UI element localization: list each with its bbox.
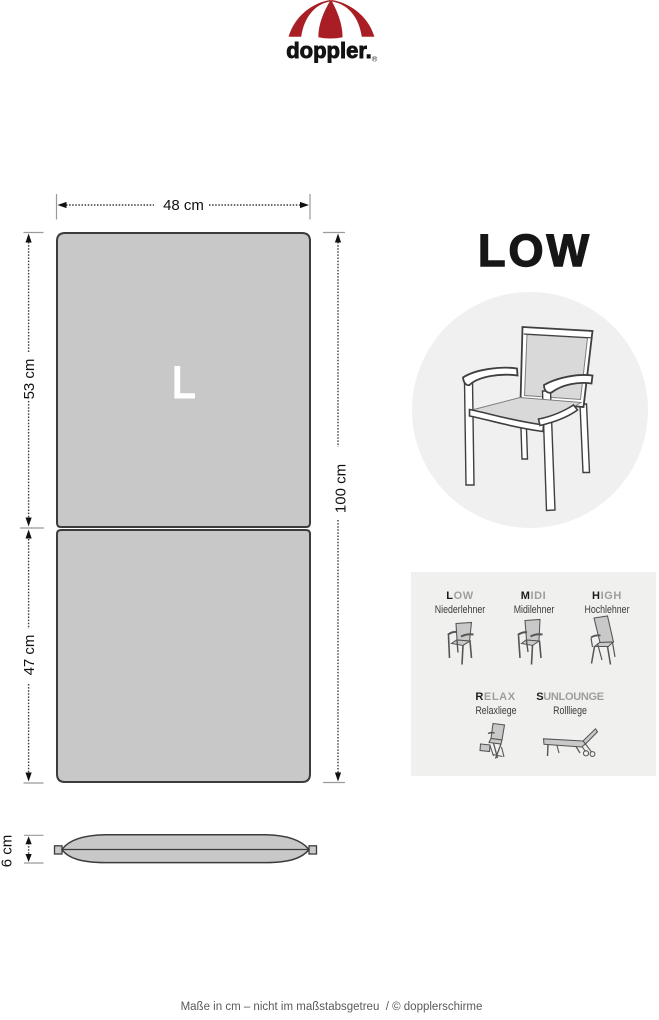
svg-text:47 cm: 47 cm (21, 635, 38, 676)
svg-text:L: L (172, 358, 196, 410)
svg-text:6 cm: 6 cm (0, 835, 16, 868)
svg-text:48 cm: 48 cm (163, 197, 204, 214)
svg-text:53 cm: 53 cm (21, 359, 38, 400)
svg-text:100 cm: 100 cm (333, 464, 350, 513)
